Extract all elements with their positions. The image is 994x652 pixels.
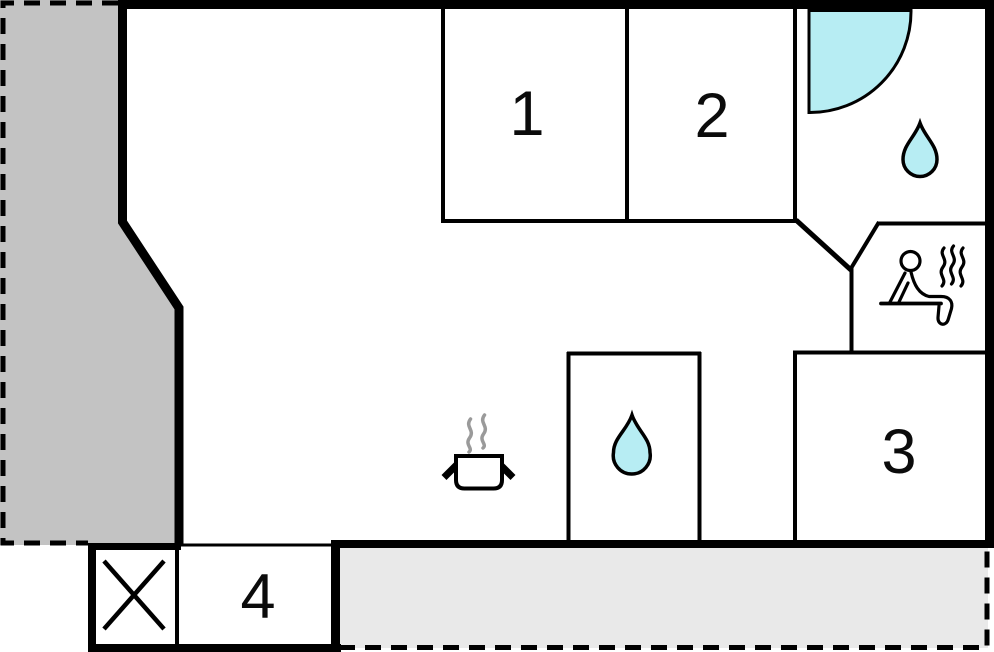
sauna-person-head xyxy=(901,252,920,271)
wall-right xyxy=(985,0,994,548)
wall-bottom-right xyxy=(331,540,990,548)
terrace-bottom xyxy=(337,544,988,648)
floor-plan-canvas: 1 2 3 4 xyxy=(0,0,994,652)
room4-wall-right xyxy=(331,543,340,652)
room-4-label: 4 xyxy=(240,562,275,632)
entrance-wall-bottom xyxy=(88,644,341,652)
entrance-wall-top xyxy=(88,543,181,550)
pot-body xyxy=(456,456,502,489)
floor-plan: 1 2 3 4 xyxy=(0,0,994,652)
room-3-label: 3 xyxy=(881,417,916,487)
room-2-label: 2 xyxy=(694,81,729,151)
entrance-wall-left xyxy=(88,543,96,652)
wall-top xyxy=(118,0,994,9)
room-1-label: 1 xyxy=(509,79,544,149)
